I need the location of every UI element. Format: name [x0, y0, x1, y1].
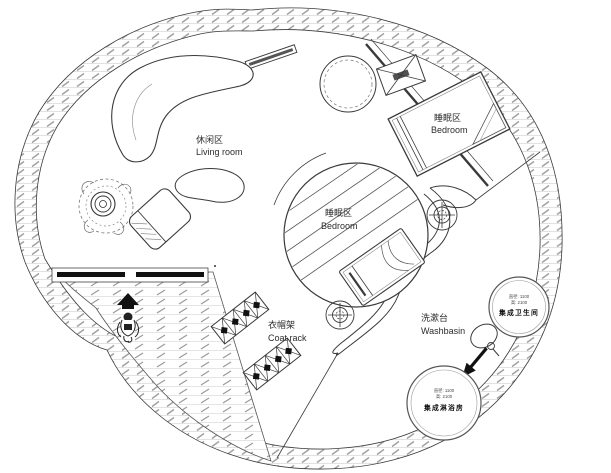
coat-rack-label-zh: 衣帽架: [268, 319, 295, 330]
shower-pod: 直径: 1100 高: 2100 集成淋浴房: [407, 366, 481, 440]
upper-bedroom-label-en: Bedroom: [431, 125, 468, 135]
center-bedroom-label-en: Bedroom: [321, 221, 358, 231]
pod-spec-diameter: 直径: 1100: [434, 387, 455, 393]
round-table: [320, 56, 376, 112]
living-room-sofa: [112, 56, 254, 162]
window-strip: [245, 45, 297, 69]
washbasin-label-en: Washbasin: [421, 326, 465, 336]
coat-rack-unit: [243, 338, 301, 390]
center-bedroom-label-zh: 睡眠区: [325, 207, 352, 218]
pod-name: 集成淋浴房: [423, 403, 464, 412]
living-room-label-zh: 休闲区: [196, 134, 223, 145]
pod-name: 集成卫生间: [498, 308, 539, 317]
washbasin-label-zh: 洗漱台: [421, 312, 448, 323]
light-fixture-symbol: [326, 301, 354, 329]
equipment-crossed-box-symbol: [376, 55, 425, 96]
pod-spec-diameter: 直径: 1100: [509, 293, 530, 299]
floor-plan-drawing: 直径: 1100 高: 2100 集成卫生间 直径: 1100 高: 2100 …: [0, 0, 611, 473]
coffee-table: [175, 168, 244, 202]
light-fixture-symbol: [427, 200, 457, 230]
pod-spec-height: 高: 2100: [511, 299, 528, 306]
potted-plant: [79, 179, 133, 234]
sliding-door: [52, 268, 208, 282]
hall-partition-line: [277, 353, 338, 458]
pod-spec-height: 高: 2100: [436, 393, 453, 400]
floor-plan-canvas: 直径: 1100 高: 2100 集成卫生间 直径: 1100 高: 2100 …: [0, 0, 611, 473]
bath-partition-line: [476, 152, 540, 200]
terrace-deck: [52, 265, 271, 461]
reference-dot: [214, 265, 216, 267]
coat-rack-label-en: Coat rack: [268, 333, 307, 343]
living-room-label-en: Living room: [196, 147, 243, 157]
upper-bedroom-label-zh: 睡眠区: [434, 112, 461, 123]
bathroom-pod: 直径: 1100 高: 2100 集成卫生间: [489, 277, 549, 337]
